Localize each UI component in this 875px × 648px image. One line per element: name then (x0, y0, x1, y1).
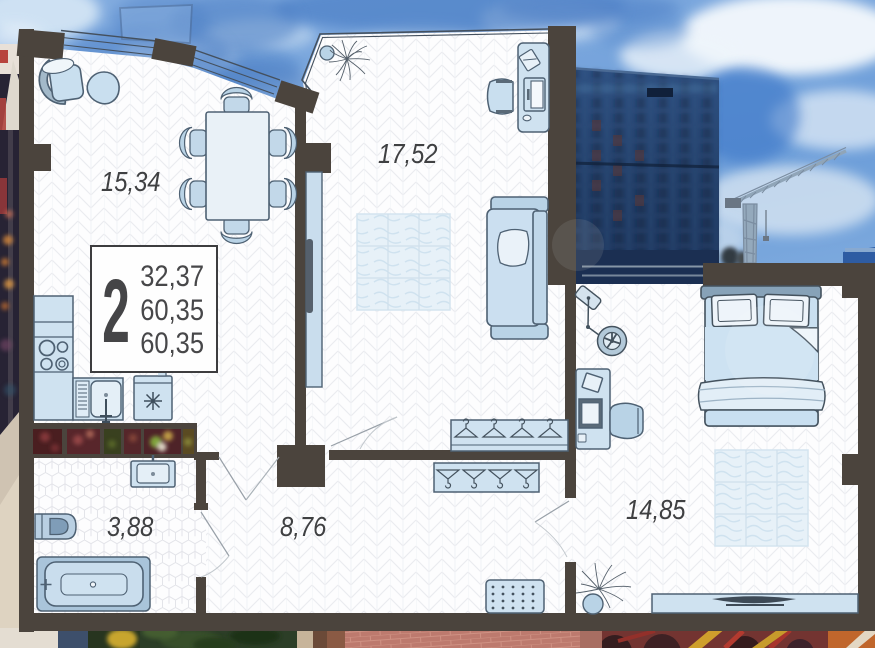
svg-text:14,85: 14,85 (626, 493, 686, 525)
svg-text:17,52: 17,52 (378, 137, 438, 169)
svg-text:3,88: 3,88 (107, 510, 154, 542)
svg-text:60,35: 60,35 (140, 293, 204, 326)
svg-text:8,76: 8,76 (280, 510, 327, 542)
svg-text:2: 2 (102, 261, 130, 361)
svg-text:32,37: 32,37 (140, 259, 204, 292)
svg-text:60,35: 60,35 (140, 326, 204, 359)
svg-text:15,34: 15,34 (101, 165, 161, 197)
